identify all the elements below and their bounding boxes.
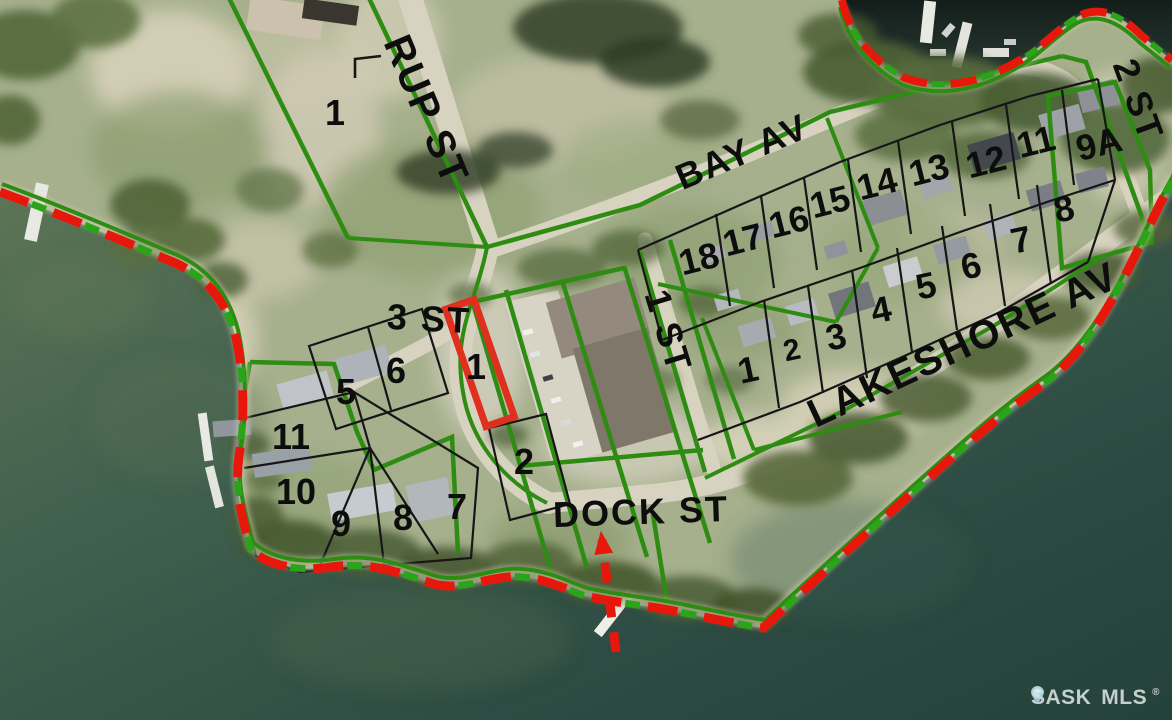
watermark-registered: ®: [1152, 688, 1160, 698]
aerial-parcel-map[interactable]: [0, 0, 1172, 720]
sask-mls-watermark: SASK MLS ®: [1031, 686, 1160, 710]
map-viewport[interactable]: RUP STBAY AV2 ST1 ST3 STDOCK STLAKESHORE…: [0, 0, 1172, 720]
watermark-text-right: MLS: [1101, 686, 1147, 710]
